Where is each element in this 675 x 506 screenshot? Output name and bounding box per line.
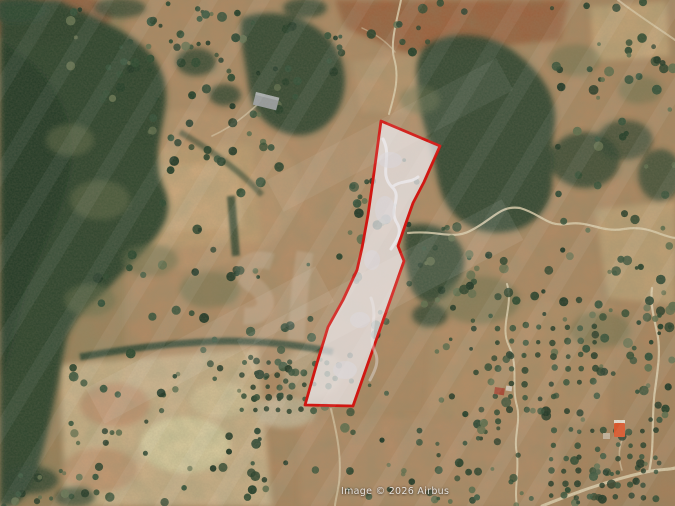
satellite-map-view: Image © 2026 Airbus [0,0,675,506]
photo-grain-overlay [0,0,675,506]
satellite-image [0,0,675,506]
